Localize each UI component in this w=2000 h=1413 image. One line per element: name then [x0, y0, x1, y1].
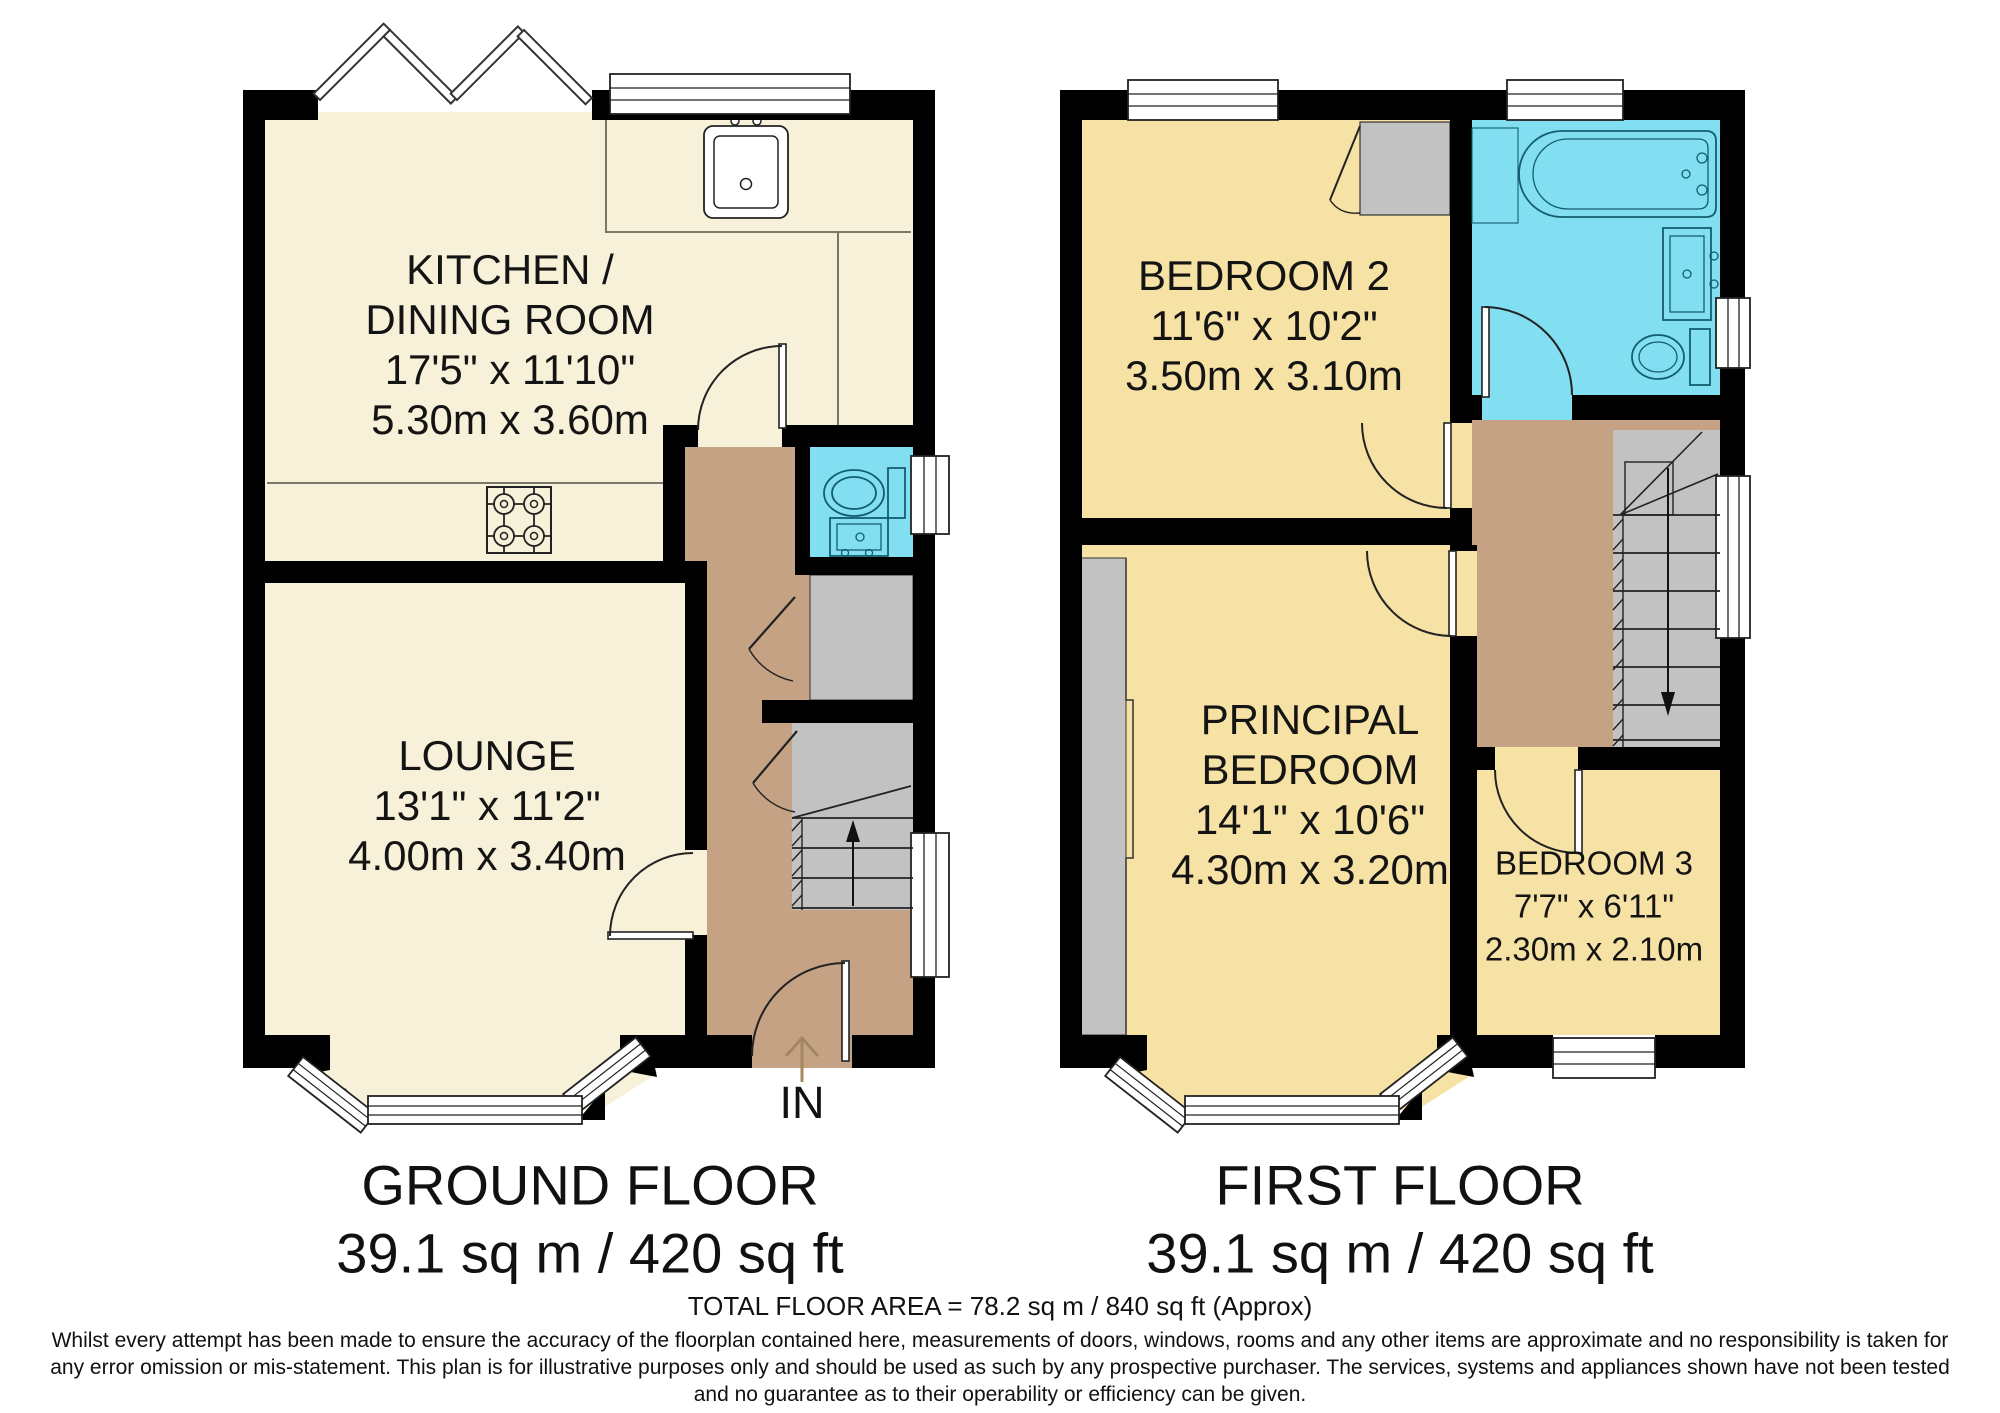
- window-wc: [911, 456, 949, 534]
- disclaimer-text: Whilst every attempt has been made to en…: [45, 1327, 1955, 1408]
- window-bedroom2: [1128, 80, 1278, 120]
- floorplan-drawing: [0, 0, 2000, 1413]
- window-hall: [911, 833, 949, 977]
- first-floor-title: FIRST FLOOR: [1146, 1152, 1653, 1220]
- bedroom3-size-metric: 2.30m x 2.10m: [1485, 928, 1703, 971]
- window-bathroom-top: [1507, 80, 1623, 120]
- lounge-name: LOUNGE: [348, 731, 626, 781]
- room-label-lounge: LOUNGE 13'1" x 11'2" 4.00m x 3.40m: [348, 731, 626, 881]
- entrance-label: IN: [780, 1077, 825, 1129]
- principal-size-metric: 4.30m x 3.20m: [1171, 845, 1449, 895]
- bedroom3-size-imperial: 7'7" x 6'11": [1485, 886, 1703, 929]
- ground-floor-area: 39.1 sq m / 420 sq ft: [336, 1220, 843, 1288]
- first-floor-plan: [1060, 80, 1750, 1133]
- first-floor-area: 39.1 sq m / 420 sq ft: [1146, 1220, 1653, 1288]
- principal-name-line1: PRINCIPAL: [1171, 695, 1449, 745]
- room-label-kitchen: KITCHEN / DINING ROOM 17'5" x 11'10" 5.3…: [365, 245, 654, 445]
- room-label-bedroom3: BEDROOM 3 7'7" x 6'11" 2.30m x 2.10m: [1485, 843, 1703, 972]
- principal-size-imperial: 14'1" x 10'6": [1171, 795, 1449, 845]
- bay-window-principal: [1105, 1035, 1475, 1133]
- wardrobe: [1080, 558, 1126, 1035]
- ground-floor-plan: [243, 24, 949, 1133]
- room-fill-bathroom: [1472, 120, 1720, 395]
- bedroom2-size-imperial: 11'6" x 10'2": [1125, 301, 1403, 351]
- kitchen-name-line1: KITCHEN /: [365, 245, 654, 295]
- window-bathroom-side: [1716, 298, 1750, 368]
- total-floor-area: TOTAL FLOOR AREA = 78.2 sq m / 840 sq ft…: [0, 1291, 2000, 1322]
- window-bedroom3: [1553, 1038, 1655, 1078]
- kitchen-size-metric: 5.30m x 3.60m: [365, 395, 654, 445]
- principal-name-line2: BEDROOM: [1171, 745, 1449, 795]
- storage-cupboard-1: [810, 575, 913, 700]
- bifold-door: [314, 24, 592, 105]
- kitchen-name-line2: DINING ROOM: [365, 295, 654, 345]
- kitchen-size-imperial: 17'5" x 11'10": [365, 345, 654, 395]
- bay-window-lounge: [288, 1035, 658, 1133]
- window-kitchen-top: [610, 74, 850, 114]
- bedroom3-name: BEDROOM 3: [1485, 843, 1703, 886]
- kitchen-sink: [704, 117, 788, 218]
- room-label-bedroom2: BEDROOM 2 11'6" x 10'2" 3.50m x 3.10m: [1125, 251, 1403, 401]
- bedroom2-cupboard: [1360, 122, 1450, 215]
- bedroom2-name: BEDROOM 2: [1125, 251, 1403, 301]
- room-label-principal: PRINCIPAL BEDROOM 14'1" x 10'6" 4.30m x …: [1171, 695, 1449, 895]
- window-landing: [1716, 476, 1750, 638]
- lounge-size-imperial: 13'1" x 11'2": [348, 781, 626, 831]
- ground-floor-label: GROUND FLOOR 39.1 sq m / 420 sq ft: [336, 1152, 843, 1289]
- bedroom2-size-metric: 3.50m x 3.10m: [1125, 351, 1403, 401]
- ground-floor-title: GROUND FLOOR: [336, 1152, 843, 1220]
- lounge-size-metric: 4.00m x 3.40m: [348, 831, 626, 881]
- first-floor-label: FIRST FLOOR 39.1 sq m / 420 sq ft: [1146, 1152, 1653, 1289]
- floorplan-page: KITCHEN / DINING ROOM 17'5" x 11'10" 5.3…: [0, 0, 2000, 1413]
- room-fill-kitchen-lower: [265, 425, 663, 561]
